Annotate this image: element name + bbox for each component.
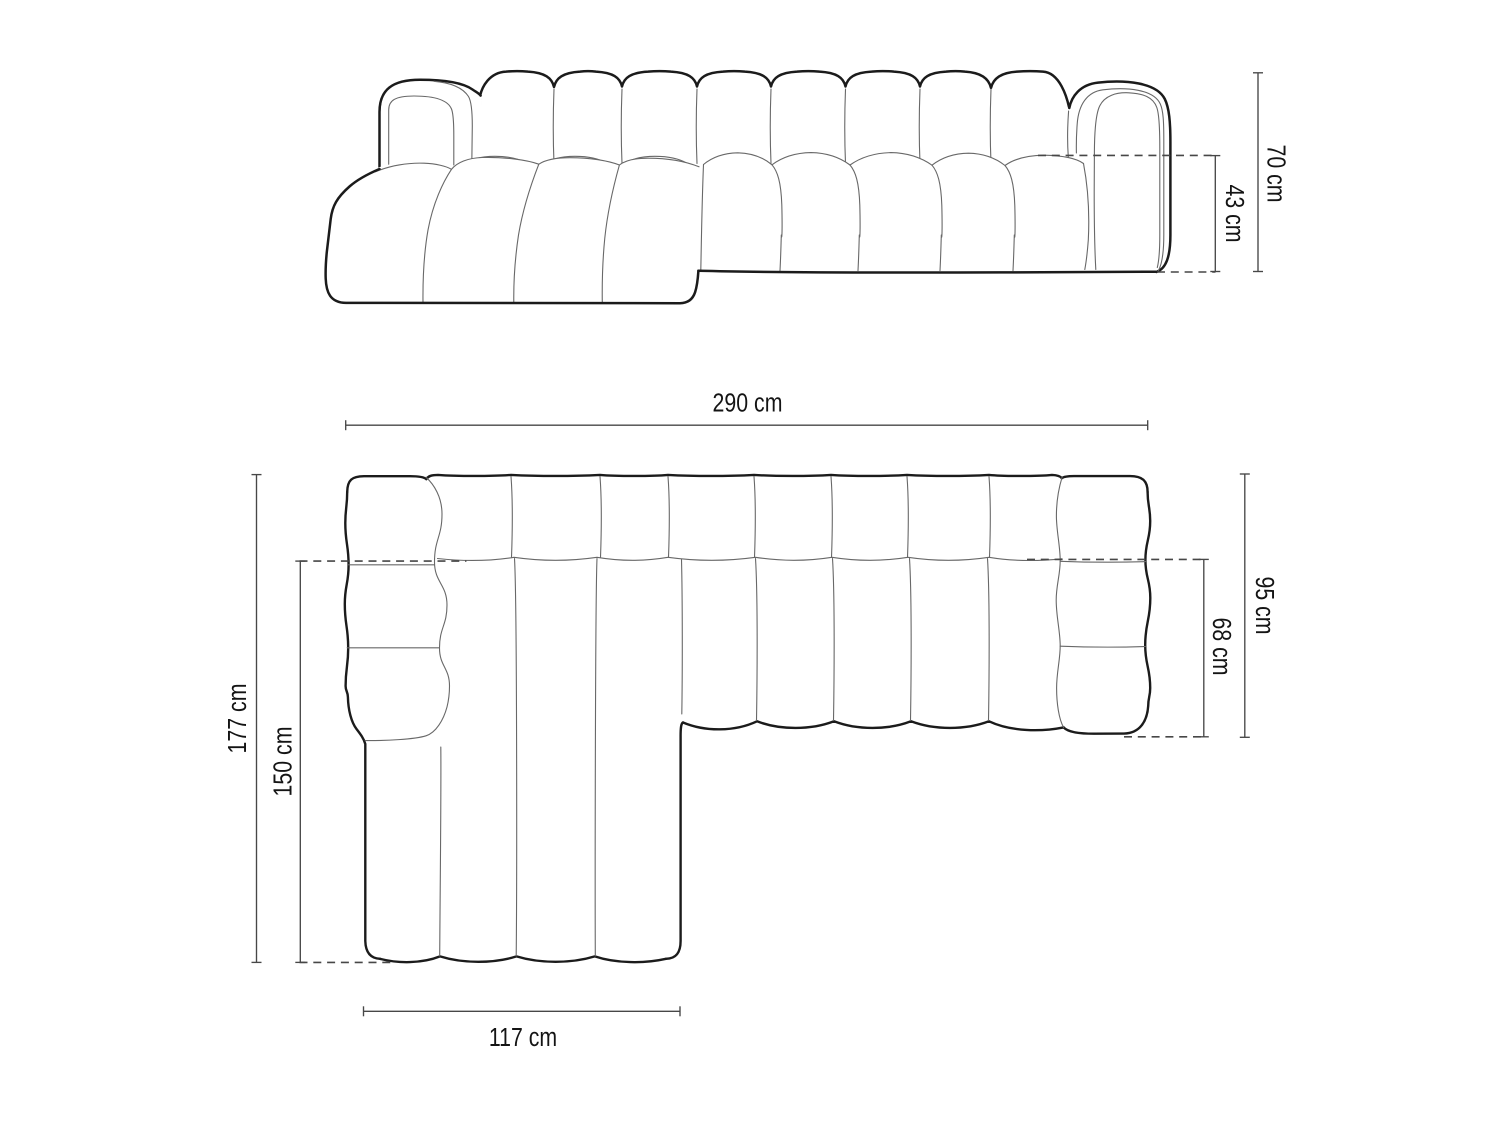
svg-text:70 cm: 70 cm: [1261, 144, 1291, 202]
svg-text:95 cm: 95 cm: [1249, 576, 1279, 634]
svg-text:117 cm: 117 cm: [489, 1023, 557, 1053]
svg-text:177 cm: 177 cm: [223, 684, 253, 754]
svg-text:68 cm: 68 cm: [1206, 617, 1236, 675]
svg-text:43 cm: 43 cm: [1219, 184, 1249, 242]
svg-text:150 cm: 150 cm: [269, 727, 299, 797]
svg-text:290 cm: 290 cm: [713, 389, 783, 419]
